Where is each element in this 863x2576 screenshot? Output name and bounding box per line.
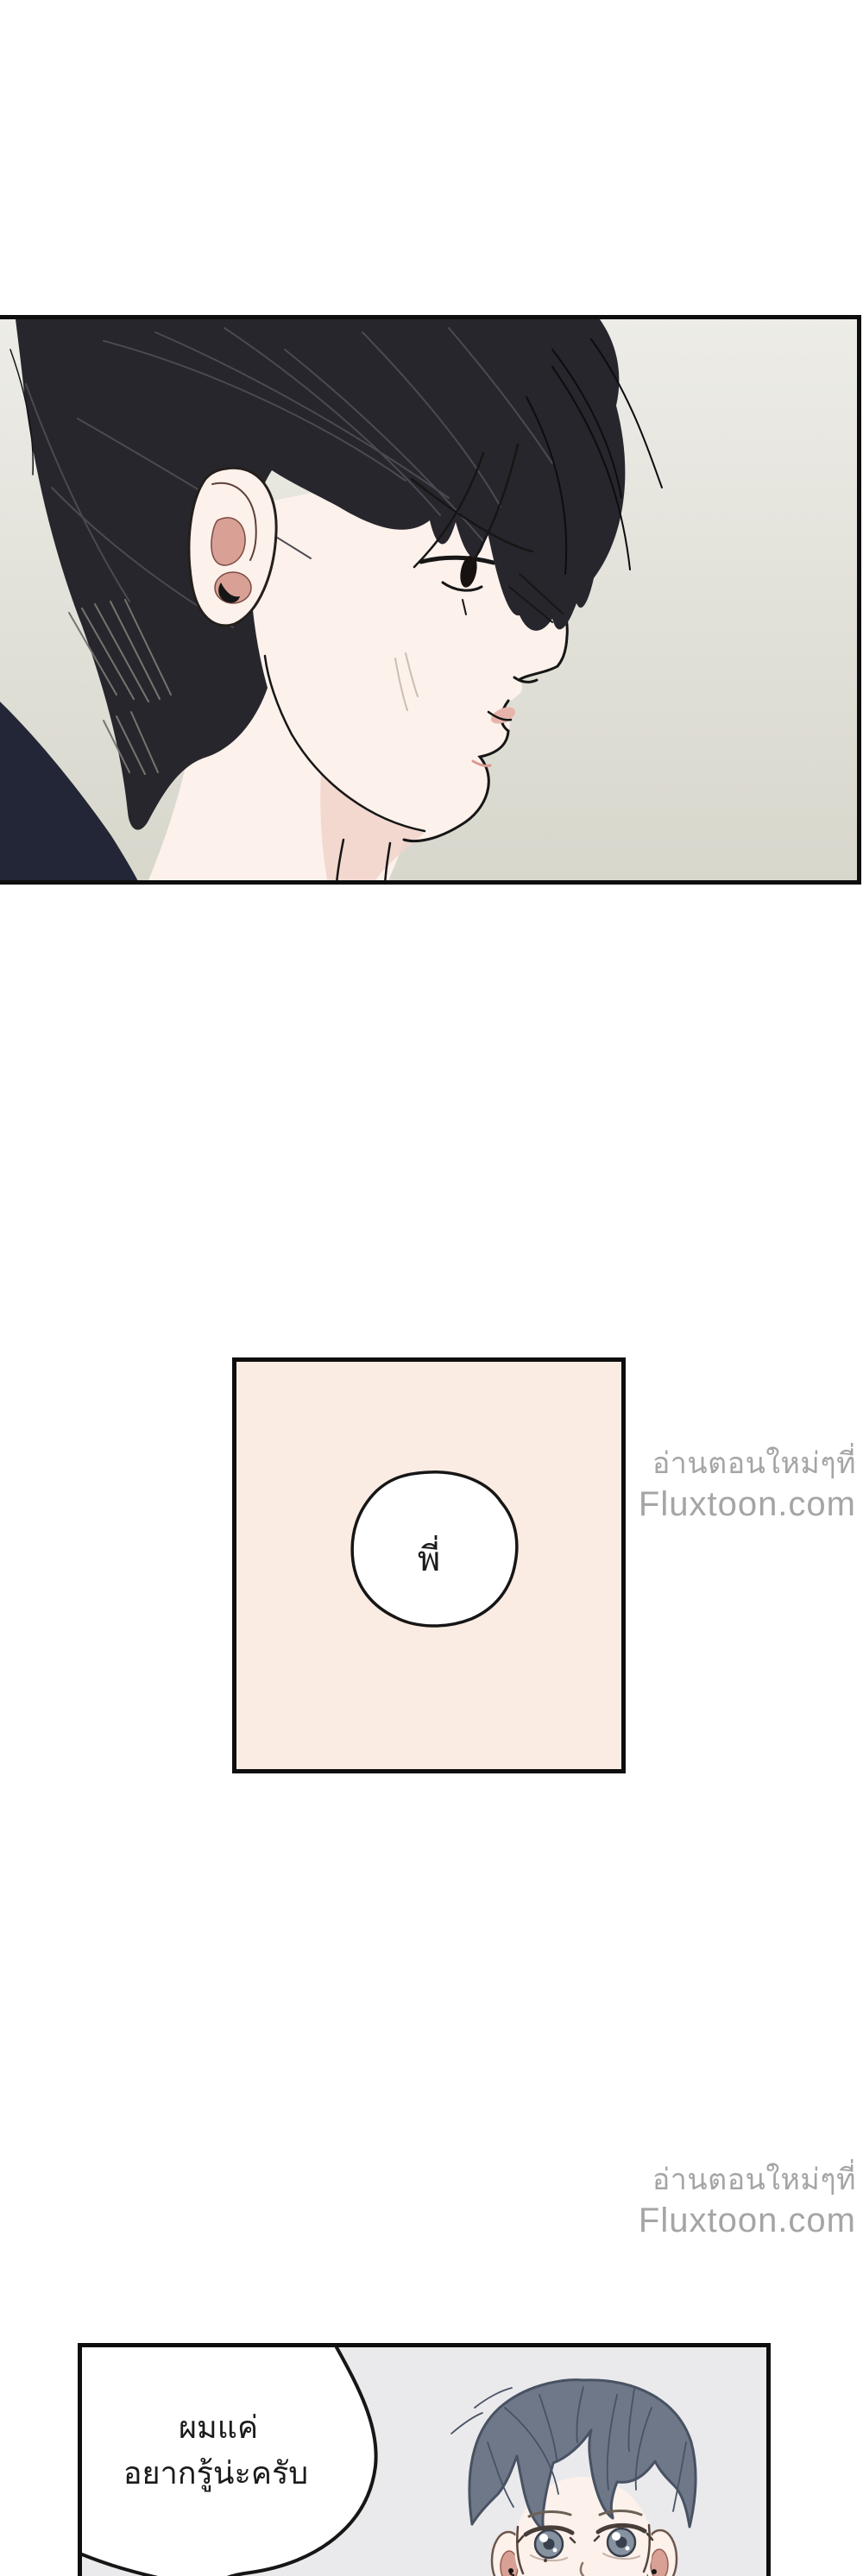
panel1-border-right [857,315,861,885]
panel-boy-speech: ผมแค่ อยากรู้น่ะครับ [78,2343,771,2576]
boy-panel-illustration: ผมแค่ อยากรู้น่ะครับ [82,2347,766,2576]
boy-character [451,2380,696,2576]
bubble-text-line2: อยากรู้น่ะครับ [123,2455,308,2492]
panel1-border-bottom [0,880,861,885]
speech-bubble-small: พี่ [352,1472,517,1626]
bubble-text-line1: ผมแค่ [179,2409,258,2445]
panel-pink-bubble: พี่ [232,1357,626,1773]
man-profile-illustration [0,315,861,885]
cheek-mole [544,2559,547,2562]
pink-panel-illustration: พี่ [236,1362,621,1769]
speech-bubble-large: ผมแค่ อยากรู้น่ะครับ [82,2347,376,2576]
bubble-text-phi: พี่ [418,1535,440,1578]
watermark-site-name: Fluxtoon.com [494,2202,856,2239]
panel-man-profile [0,315,861,885]
watermark-thai-text: อ่านตอนใหม่ๆที่ [494,2157,856,2202]
webtoon-page: { "page": {"width": 1000, "height": 2985… [0,0,863,2576]
panel1-border-top [0,315,861,319]
site-watermark: อ่านตอนใหม่ๆที่ Fluxtoon.com [494,2157,856,2239]
